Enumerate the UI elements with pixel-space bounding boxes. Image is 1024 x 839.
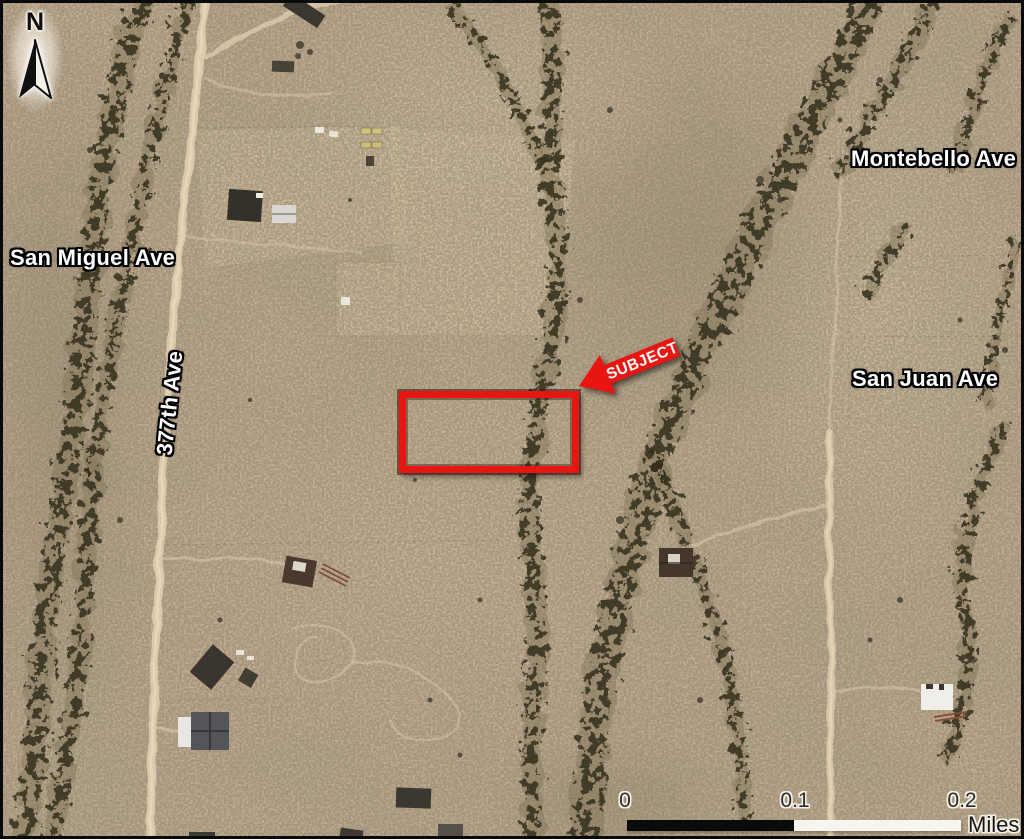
building [659,548,693,577]
north-arrow-icon [15,38,55,102]
subject-parcel-outline [399,391,579,473]
street-label-montebello-ave: Montebello Ave [851,146,1016,172]
street-label-san-juan-ave: San Juan Ave [852,366,998,392]
aerial-site-map: N San Miguel Ave Montebello Ave 377th Av… [0,0,1024,839]
building [282,556,317,588]
north-label: N [26,10,44,35]
building [178,717,192,747]
north-arrow: N [6,2,64,114]
street-label-san-miguel-ave: San Miguel Ave [10,245,175,271]
